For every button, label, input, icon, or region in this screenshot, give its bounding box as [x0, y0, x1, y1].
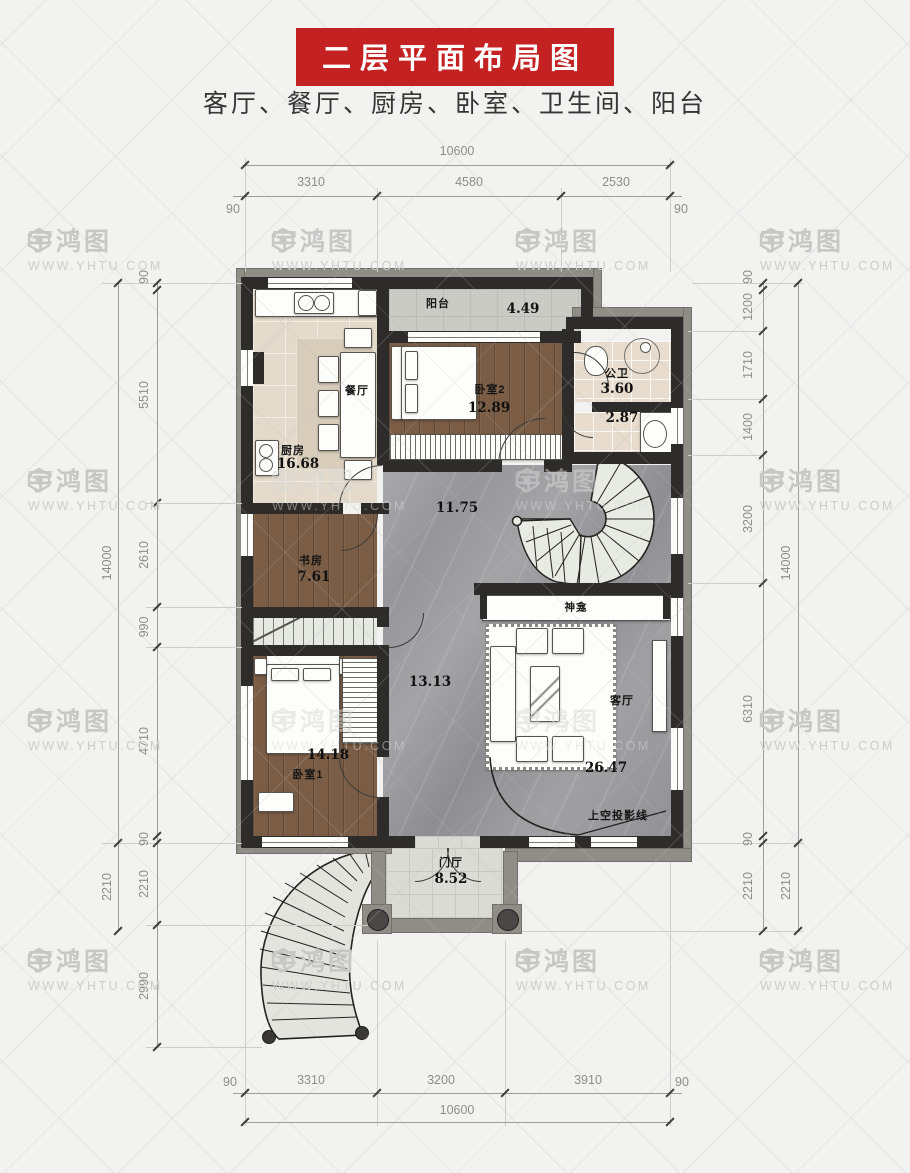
sink-bowl [298, 295, 314, 311]
wall-segment [377, 607, 389, 627]
room-area-living: 26.47 [585, 760, 627, 776]
stove-burner [259, 444, 273, 458]
dim-label: 10600 [440, 144, 475, 158]
wall-segment [480, 836, 505, 848]
exterior-wall-bevel [505, 848, 692, 862]
shower-head [640, 342, 651, 353]
room-area-hall-lower: 13.13 [409, 674, 451, 690]
foyer-doorway-floor [415, 836, 480, 848]
dim-label: 3200 [427, 1073, 455, 1087]
watermark-brand: 宇鸿图 [760, 222, 844, 258]
room-label-foyer: 门厅 [439, 854, 463, 870]
dim-label: 90 [137, 270, 151, 284]
window [241, 686, 253, 780]
dim-label: 1200 [741, 293, 755, 321]
dining-chair [318, 424, 339, 451]
sofa-long [490, 646, 516, 742]
ext-line [688, 455, 763, 456]
watermark-url: WWW.YHTU.COM [760, 499, 910, 513]
room-area-foyer: 8.52 [435, 871, 468, 887]
dim-line [245, 1122, 670, 1123]
bed2-pillow [405, 351, 418, 380]
room-area-bath2: 2.87 [606, 410, 639, 426]
room-area-bedroom2: 12.89 [468, 400, 510, 416]
watermark: 宇鸿图WWW.YHTU.COM [760, 942, 910, 993]
wall-segment [389, 836, 415, 848]
room-label-shrine: 神龛 [565, 600, 588, 615]
dim-label: 1710 [741, 351, 755, 379]
dim-label: 2990 [137, 972, 151, 1000]
ext-line [670, 862, 671, 1126]
watermark-brand: 宇鸿图 [760, 942, 844, 978]
ext-line [146, 647, 242, 648]
watermark-brand: 宇鸿图 [28, 222, 112, 258]
dim-line [157, 283, 158, 1047]
ext-line [377, 188, 378, 272]
room-area-kitchen: 16.68 [277, 456, 319, 472]
ext-line [245, 158, 246, 272]
sink-bowl [314, 295, 330, 311]
watermark: 宇鸿图WWW.YHTU.COM [516, 222, 696, 273]
shrine-niche-cap [480, 595, 487, 619]
wall-segment [245, 645, 389, 656]
room-area-study: 7.61 [298, 569, 331, 585]
window [241, 350, 253, 386]
dim-label: 90 [675, 1075, 689, 1089]
ext-line [505, 940, 506, 1126]
watermark-url: WWW.YHTU.COM [760, 739, 910, 753]
coffee-table [530, 666, 560, 722]
stove-burner [259, 458, 273, 472]
dim-label: 90 [741, 832, 755, 846]
watermark-brand: 宇鸿图 [516, 222, 600, 258]
watermark: 宇鸿图WWW.YHTU.COM [760, 462, 910, 513]
bath2-sink [643, 420, 667, 448]
dim-label: 6310 [741, 695, 755, 723]
ext-line [245, 856, 246, 1126]
room-label-bedroom1: 卧室1 [292, 766, 323, 782]
room-label-balcony: 阳台 [426, 295, 450, 311]
ext-line [102, 843, 242, 844]
watermark-url: WWW.YHTU.COM [28, 259, 208, 273]
watermark: 宇鸿图WWW.YHTU.COM [28, 222, 208, 273]
room-label-bedroom2: 卧室2 [474, 381, 505, 397]
ext-line [688, 331, 763, 332]
wall-segment [245, 503, 343, 514]
watermark-url: WWW.YHTU.COM [760, 979, 910, 993]
dim-label: 4580 [455, 175, 483, 189]
balcony-sliding-door [408, 332, 540, 342]
ext-line [146, 1047, 262, 1048]
ext-line [102, 283, 242, 284]
wall-segment [562, 452, 671, 464]
dim-label: 3310 [297, 175, 325, 189]
ext-line [688, 583, 763, 584]
window [671, 728, 683, 790]
bedroom1-wardrobe [342, 658, 378, 744]
dim-label: 14000 [779, 546, 793, 581]
tv-cabinet [652, 640, 667, 732]
room-label-living: 客厅 [610, 692, 634, 708]
window [262, 837, 348, 847]
yhtu-logo-icon [28, 708, 50, 732]
watermark: 宇鸿图WWW.YHTU.COM [760, 222, 910, 273]
balcony-floor [389, 289, 581, 331]
wall-segment [245, 607, 389, 618]
watermark: 宇鸿图WWW.YHTU.COM [28, 942, 208, 993]
ext-line [670, 158, 671, 272]
watermark-url: WWW.YHTU.COM [516, 979, 696, 993]
dim-label: 90 [226, 202, 240, 216]
void-projection-label: 上空投影线 [588, 807, 648, 823]
room-area-balcony: 4.49 [507, 301, 540, 317]
ext-line [146, 607, 242, 608]
dim-line [798, 283, 799, 931]
bed1-bench [258, 792, 294, 812]
shrine-niche-cap [663, 595, 670, 619]
dim-label: 14000 [100, 546, 114, 581]
bed1-nightstand [254, 658, 267, 675]
dim-label: 4710 [137, 727, 151, 755]
wall-segment [377, 645, 389, 757]
yhtu-logo-icon [28, 468, 50, 492]
dim-line [245, 165, 670, 166]
dim-label: 90 [223, 1075, 237, 1089]
room-label-dining: 餐厅 [345, 382, 369, 398]
watermark: 宇鸿图WWW.YHTU.COM [516, 942, 696, 993]
yhtu-logo-icon [272, 228, 294, 252]
bed1-pillow [303, 668, 331, 681]
page-subtitle: 客厅、餐厅、厨房、卧室、卫生间、阳台 [203, 84, 707, 120]
dim-label: 90 [741, 270, 755, 284]
yhtu-logo-icon [760, 948, 782, 972]
watermark-brand: 宇鸿图 [28, 702, 112, 738]
ext-line [561, 188, 562, 272]
dim-tick [113, 926, 122, 935]
dining-chair [318, 390, 339, 417]
watermark-brand: 宇鸿图 [28, 942, 112, 978]
dim-label: 2210 [741, 872, 755, 900]
window [591, 837, 637, 847]
watermark: 宇鸿图WWW.YHTU.COM [760, 702, 910, 753]
dim-label: 5510 [137, 381, 151, 409]
window [671, 598, 683, 636]
ext-line [377, 940, 378, 1126]
dim-label: 2210 [137, 870, 151, 898]
void-projection-line [480, 745, 680, 845]
spiral-staircase [495, 450, 665, 590]
wall-segment [377, 283, 389, 465]
room-label-bath: 公卫 [605, 365, 629, 381]
fridge [358, 290, 377, 316]
watermark-brand: 宇鸿图 [516, 942, 600, 978]
wall-segment [474, 583, 671, 595]
ext-line [688, 399, 763, 400]
exterior-wall-bevel [683, 307, 692, 856]
wall-segment [377, 797, 389, 848]
window [671, 498, 683, 554]
room-area-bath: 3.60 [601, 381, 634, 397]
sofa-seat [552, 628, 584, 654]
floorplan-page: 二层平面布局图 客厅、餐厅、厨房、卧室、卫生间、阳台 [0, 0, 910, 1173]
sofa-seat [516, 628, 548, 654]
bed1-pillow [271, 668, 299, 681]
dim-label: 90 [674, 202, 688, 216]
dim-label: 3910 [574, 1073, 602, 1087]
dim-label: 3200 [741, 505, 755, 533]
bed2-pillow [405, 384, 418, 413]
dim-label: 2210 [779, 872, 793, 900]
dim-label: 2610 [137, 541, 151, 569]
watermark: 宇鸿图WWW.YHTU.COM [272, 222, 452, 273]
dim-label: 90 [137, 832, 151, 846]
page-title: 二层平面布局图 [296, 28, 614, 86]
watermark-brand: 宇鸿图 [28, 462, 112, 498]
foyer-column [497, 909, 519, 931]
wall-segment [383, 460, 502, 472]
yhtu-logo-icon [516, 948, 538, 972]
window [529, 837, 575, 847]
dim-label: 3310 [297, 1073, 325, 1087]
window [671, 408, 683, 444]
dining-table [340, 352, 376, 458]
window [268, 278, 352, 288]
dining-chair [318, 356, 339, 383]
watermark-brand: 宇鸿图 [272, 222, 356, 258]
window [241, 514, 253, 556]
watermark-brand: 宇鸿图 [760, 462, 844, 498]
dim-label: 2530 [602, 175, 630, 189]
dining-chair [344, 328, 372, 348]
watermark-url: WWW.YHTU.COM [760, 259, 910, 273]
ext-line [146, 503, 242, 504]
yhtu-logo-icon [516, 228, 538, 252]
watermark-url: WWW.YHTU.COM [28, 979, 208, 993]
wall-segment [562, 329, 574, 464]
wall-segment [581, 277, 593, 329]
yhtu-logo-icon [28, 228, 50, 252]
room-area-bedroom1: 14.18 [307, 747, 349, 763]
dim-line [233, 196, 682, 197]
foyer-column [367, 909, 389, 931]
dim-line [118, 283, 119, 931]
room-label-study: 书房 [299, 552, 323, 568]
dim-label: 2210 [100, 873, 114, 901]
ext-line [146, 925, 368, 926]
dim-line [233, 1093, 682, 1094]
yhtu-logo-icon [28, 948, 50, 972]
dim-label: 10600 [440, 1103, 475, 1117]
watermark-brand: 宇鸿图 [760, 702, 844, 738]
dim-label: 1400 [741, 413, 755, 441]
dim-label: 990 [137, 617, 151, 638]
yhtu-logo-icon [760, 228, 782, 252]
room-area-hall-upper: 11.75 [436, 500, 478, 516]
